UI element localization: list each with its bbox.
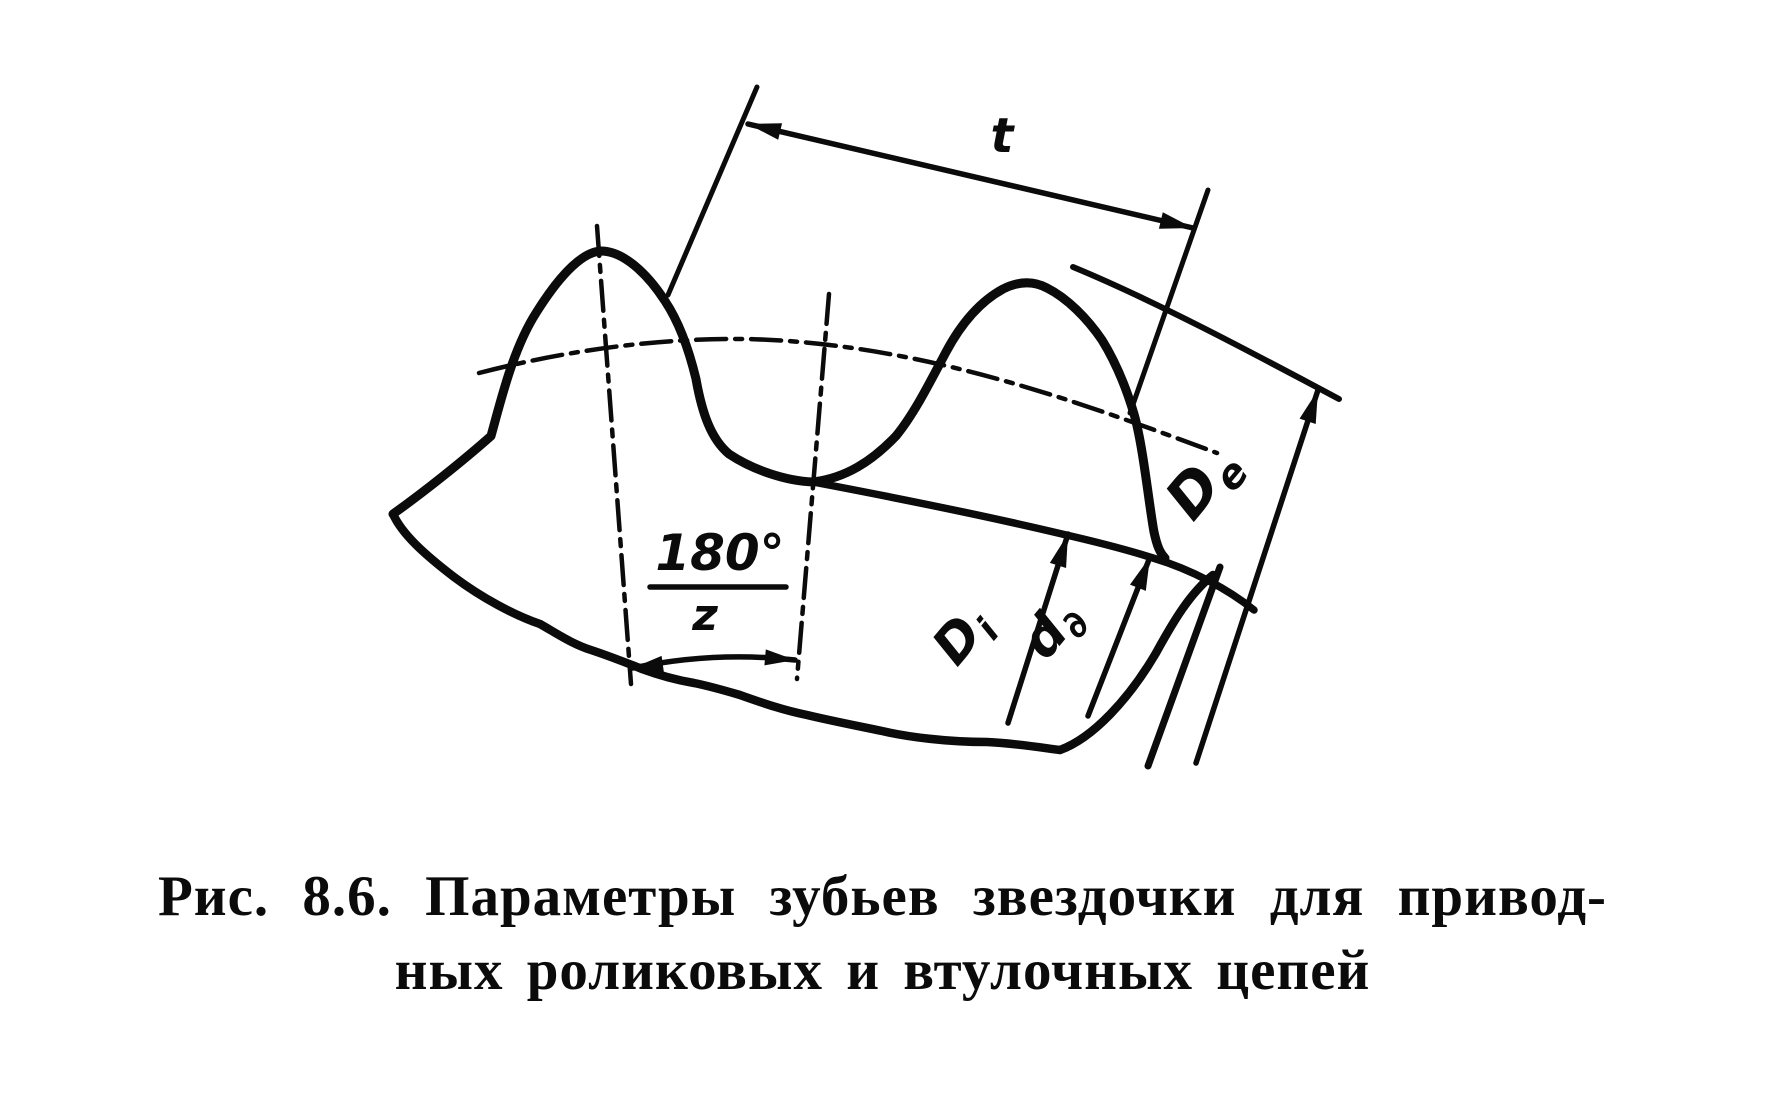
pitch-arrow-right bbox=[1159, 212, 1195, 236]
figure-page: t 180° z De Di d∂ Рис. 8.6. Параметры зу… bbox=[0, 0, 1765, 1108]
rim-break-edge bbox=[1148, 567, 1220, 766]
pitch-dimension-line bbox=[748, 124, 1193, 228]
dimension-labels: t 180° z De Di d∂ bbox=[655, 108, 1258, 681]
tooth-profile-path bbox=[393, 251, 1165, 558]
sprocket-teeth-diagram: t 180° z De Di d∂ bbox=[0, 0, 1765, 840]
tip-circle-arc bbox=[1073, 267, 1339, 399]
angle-arrow-right bbox=[764, 649, 795, 668]
angle-denominator-label: z bbox=[691, 590, 718, 641]
figure-caption-line1: Рис. 8.6. Параметры зубьев звездочки для… bbox=[0, 864, 1765, 929]
pitch-label: t bbox=[991, 108, 1016, 164]
pitch-extension-line-left bbox=[668, 87, 757, 295]
root-diameter-label: Di bbox=[921, 595, 1008, 681]
pitch-arrow-left bbox=[746, 116, 782, 140]
tooth-centerline bbox=[597, 226, 631, 684]
figure-caption-line2: ных роликовых и втулочных цепей bbox=[0, 938, 1765, 1003]
ink-strokes bbox=[393, 87, 1339, 766]
angle-numerator-label: 180° bbox=[655, 524, 784, 582]
pitch-diameter-label: d∂ bbox=[1010, 587, 1099, 674]
